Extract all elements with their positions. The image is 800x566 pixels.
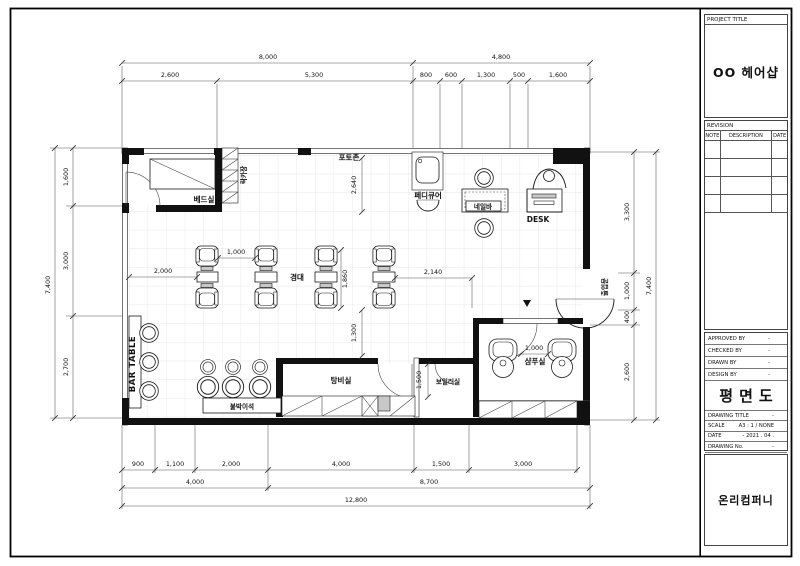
drawing-info-box: APPROVED BY- CHECKED BY- DRAWN BY- DESIG… [704, 332, 788, 451]
dim-int-1300: 1,300 [350, 324, 358, 342]
seat-back [201, 360, 216, 375]
label-nail-bar: 네일바 [474, 202, 493, 211]
dim-top-600: 600 [445, 71, 457, 79]
dim-int-1500: 1,500 [415, 371, 423, 389]
locker-shelf [222, 148, 238, 203]
dim-right-1000: 1,000 [623, 282, 631, 300]
dim-top-1600: 1,600 [549, 71, 567, 79]
dim-bottom-2000: 2,000 [222, 460, 240, 468]
label-pantry: 탕비실 [331, 375, 352, 385]
revision-empty-area [705, 213, 787, 329]
approved-by-row: APPROVED BY- [705, 333, 787, 345]
seat-back [253, 360, 268, 375]
dim-bottom-4000b: 4,000 [186, 478, 204, 486]
stairs-right [479, 401, 590, 419]
dim-top-1300: 1,300 [477, 71, 495, 79]
dim-left-7400: 7,400 [44, 276, 52, 294]
project-title-box: PROJECT TITLE OO 헤어샵 [704, 14, 788, 118]
revision-box: REVISION NOTE DESCRIPTION DATE [704, 120, 788, 330]
project-title: OO 헤어샵 [705, 25, 787, 117]
seat [249, 376, 270, 397]
company-name: 온리컴퍼니 [718, 492, 774, 508]
nail-stool [475, 219, 494, 238]
revision-col-date: DATE [772, 131, 787, 140]
label-bed-room: 베드실 [194, 194, 215, 204]
dim-top-500: 500 [513, 71, 525, 79]
drawn-by-row: DRAWN BY- [705, 357, 787, 369]
bed [150, 159, 215, 189]
dim-left-1600: 1,600 [62, 168, 70, 186]
seat [197, 376, 218, 397]
dim-bottom-4000: 4,000 [332, 460, 350, 468]
label-locker: 락카장 [239, 166, 248, 184]
label-bar-table: BAR TABLE [128, 336, 138, 392]
title-block: PROJECT TITLE OO 헤어샵 REVISION NOTE DESCR… [700, 8, 791, 557]
label-boiler: 보일러실 [436, 377, 460, 386]
dim-right-2600: 2,600 [623, 363, 631, 381]
seat-back [226, 360, 241, 375]
dim-left-3000: 3,000 [62, 252, 70, 270]
dim-int-2000: 2,000 [154, 267, 172, 275]
dim-int-2140: 2,140 [424, 268, 442, 276]
date-row: DATE- 2021 . 04 . [705, 432, 787, 442]
dim-int-2640: 2,640 [350, 176, 358, 194]
dim-top-8000: 8,000 [259, 53, 277, 61]
company-box: 온리컴퍼니 [704, 454, 788, 546]
dim-bottom-900: 900 [132, 460, 144, 468]
revision-row [705, 177, 787, 195]
revision-header-row: NOTE DESCRIPTION DATE [705, 131, 787, 141]
revision-row [705, 159, 787, 177]
dim-right-3300: 3,300 [623, 203, 631, 221]
drawing-name: 평면도 [705, 381, 787, 411]
bar-stool [140, 353, 159, 372]
dim-bottom-3000: 3,000 [514, 460, 532, 468]
drawing-title-row: DRAWING TITLE- [705, 411, 787, 421]
revision-col-note: NOTE [705, 131, 721, 140]
label-pedicure: 페디큐어 [414, 190, 442, 200]
dim-int-1000: 1,000 [227, 248, 245, 256]
seat [222, 376, 243, 397]
floorplan-canvas: 8,000 4,800 2,600 5,300 800 600 1,300 50… [0, 0, 800, 566]
label-photo-zone: 포토존 [339, 153, 360, 162]
revision-label: REVISION [705, 121, 787, 131]
design-by-row: DESIGN BY- [705, 369, 787, 381]
scale-row: SCALEA3 : 1 / NONE [705, 421, 787, 431]
label-mirror: 경대 [290, 272, 304, 282]
bar-stool [140, 382, 159, 401]
dim-bottom-1500: 1,500 [432, 460, 450, 468]
dim-top-5300: 5,300 [305, 71, 323, 79]
bar-stool [140, 324, 159, 343]
dim-top-2600: 2,600 [161, 71, 179, 79]
label-desk: DESK [527, 215, 551, 224]
dim-top-4800: 4,800 [492, 53, 510, 61]
nail-stool [475, 169, 494, 188]
revision-row [705, 141, 787, 159]
dim-bottom-12800: 12,800 [345, 496, 367, 504]
label-shampoo: 샴푸실 [525, 356, 546, 366]
label-entrance: 출입문 [600, 278, 609, 296]
dim-bottom-1100: 1,100 [166, 460, 184, 468]
dim-int-1000s: 1,000 [525, 344, 543, 352]
stairs-middle [282, 396, 415, 416]
dim-left-2700: 2,700 [62, 358, 70, 376]
dim-int-1860: 1,860 [341, 270, 349, 288]
dim-right-400: 400 [623, 311, 631, 323]
checked-by-row: CHECKED BY- [705, 345, 787, 357]
drawing-no-row: DRAWING No.- [705, 442, 787, 452]
revision-row [705, 195, 787, 213]
drawing-sheet: 8,000 4,800 2,600 5,300 800 600 1,300 50… [0, 0, 800, 566]
label-built-in-seat: 붙박이석 [230, 402, 254, 411]
revision-col-description: DESCRIPTION [721, 131, 773, 140]
dim-right-7400: 7,400 [645, 277, 653, 295]
project-title-label: PROJECT TITLE [705, 15, 787, 25]
dim-bottom-8700: 8,700 [420, 478, 438, 486]
dim-top-800: 800 [420, 71, 432, 79]
